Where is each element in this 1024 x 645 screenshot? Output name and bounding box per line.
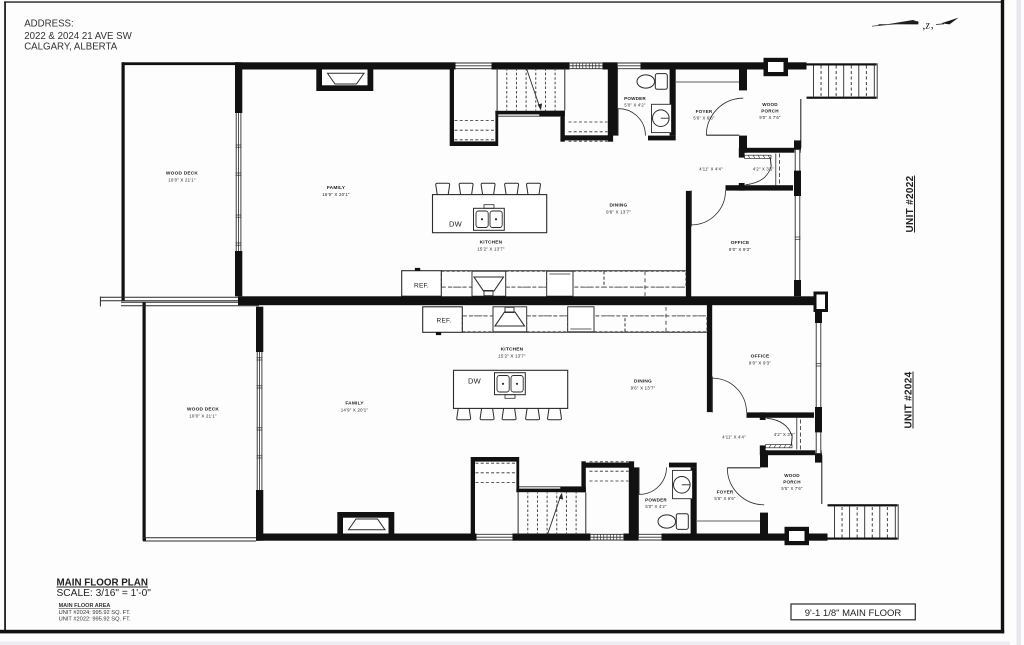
- svg-text:DW: DW: [468, 377, 482, 386]
- svg-text:5'5" X 7'6": 5'5" X 7'6": [781, 486, 803, 491]
- svg-text:UNIT #2022: UNIT #2022: [905, 175, 916, 232]
- svg-text:CALGARY, ALBERTA: CALGARY, ALBERTA: [24, 41, 118, 52]
- svg-text:POWDER: POWDER: [645, 498, 667, 503]
- svg-text:16'9" X 20'1": 16'9" X 20'1": [322, 192, 350, 197]
- svg-text:9'0" X 9'3": 9'0" X 9'3": [729, 247, 751, 252]
- svg-text:UNIT #2022: 995.92 SQ. FT.: UNIT #2022: 995.92 SQ. FT.: [59, 617, 131, 623]
- svg-text:4'2" X 3'5": 4'2" X 3'5": [774, 432, 796, 437]
- svg-text:OFFICE: OFFICE: [731, 240, 750, 246]
- svg-text:KITCHEN: KITCHEN: [501, 347, 524, 353]
- svg-text:15'2" X 13'7": 15'2" X 13'7": [498, 354, 526, 359]
- svg-text:5'0" X 4'2": 5'0" X 4'2": [645, 504, 667, 509]
- svg-text:4'11" X 4'4": 4'11" X 4'4": [722, 435, 746, 440]
- svg-text:POWDER: POWDER: [624, 96, 646, 101]
- svg-text:15'2" X 13'7": 15'2" X 13'7": [477, 247, 505, 252]
- svg-text:5'6" X 6'6": 5'6" X 6'6": [714, 496, 736, 501]
- svg-text:MAIN FLOOR PLAN: MAIN FLOOR PLAN: [57, 578, 148, 589]
- svg-text:FOYER: FOYER: [717, 490, 734, 495]
- svg-text:PORCH: PORCH: [761, 109, 779, 114]
- svg-text:DINING: DINING: [634, 379, 652, 385]
- svg-text:WOOD DECK: WOOD DECK: [166, 171, 199, 177]
- svg-text:DINING: DINING: [610, 203, 628, 209]
- svg-text:DW: DW: [449, 220, 463, 229]
- svg-text:KITCHEN: KITCHEN: [480, 240, 503, 246]
- svg-text:4'11" X 4'4": 4'11" X 4'4": [699, 167, 723, 172]
- svg-text:ADDRESS:: ADDRESS:: [24, 19, 74, 30]
- svg-text:SCALE: 3/16" = 1'-0": SCALE: 3/16" = 1'-0": [57, 588, 152, 599]
- svg-text:OFFICE: OFFICE: [751, 354, 770, 360]
- svg-text:WOOD DECK: WOOD DECK: [187, 407, 220, 413]
- svg-text:MAIN FLOOR AREA: MAIN FLOOR AREA: [59, 603, 111, 609]
- svg-text:FOYER: FOYER: [696, 109, 713, 114]
- svg-text:FAMILY: FAMILY: [327, 185, 346, 191]
- svg-text:9'0" X 7'6": 9'0" X 7'6": [759, 115, 781, 120]
- svg-text:9'0" X 9'3": 9'0" X 9'3": [749, 361, 771, 366]
- svg-text:WOOD: WOOD: [784, 473, 800, 478]
- svg-text:10'0" X 21'1": 10'0" X 21'1": [168, 178, 196, 183]
- svg-text:9'6" X 13'7": 9'6" X 13'7": [631, 386, 656, 391]
- svg-text:9'-1 1/8" MAIN FLOOR: 9'-1 1/8" MAIN FLOOR: [805, 608, 902, 619]
- svg-text:9'6" X 13'7": 9'6" X 13'7": [606, 210, 631, 215]
- svg-text:5'6" X 6'6": 5'6" X 6'6": [693, 116, 715, 121]
- svg-text:10'0" X 21'1": 10'0" X 21'1": [189, 414, 217, 419]
- svg-text:PORCH: PORCH: [783, 480, 801, 485]
- svg-text:REF.: REF.: [414, 283, 429, 290]
- svg-text:4'2" X 3'5": 4'2" X 3'5": [753, 167, 775, 172]
- svg-text:UNIT #2024: UNIT #2024: [904, 371, 915, 428]
- svg-text:FAMILY: FAMILY: [345, 401, 364, 407]
- svg-text:UNIT #2024: 995.92 SQ. FT.: UNIT #2024: 995.92 SQ. FT.: [59, 610, 131, 616]
- svg-text:WOOD: WOOD: [762, 102, 778, 107]
- svg-text:14'9" X 20'1": 14'9" X 20'1": [341, 408, 369, 413]
- svg-text:5'0" X 4'2": 5'0" X 4'2": [624, 103, 646, 108]
- svg-text:REF.: REF.: [437, 318, 452, 325]
- svg-text:‚z‚: ‚z‚: [921, 19, 934, 32]
